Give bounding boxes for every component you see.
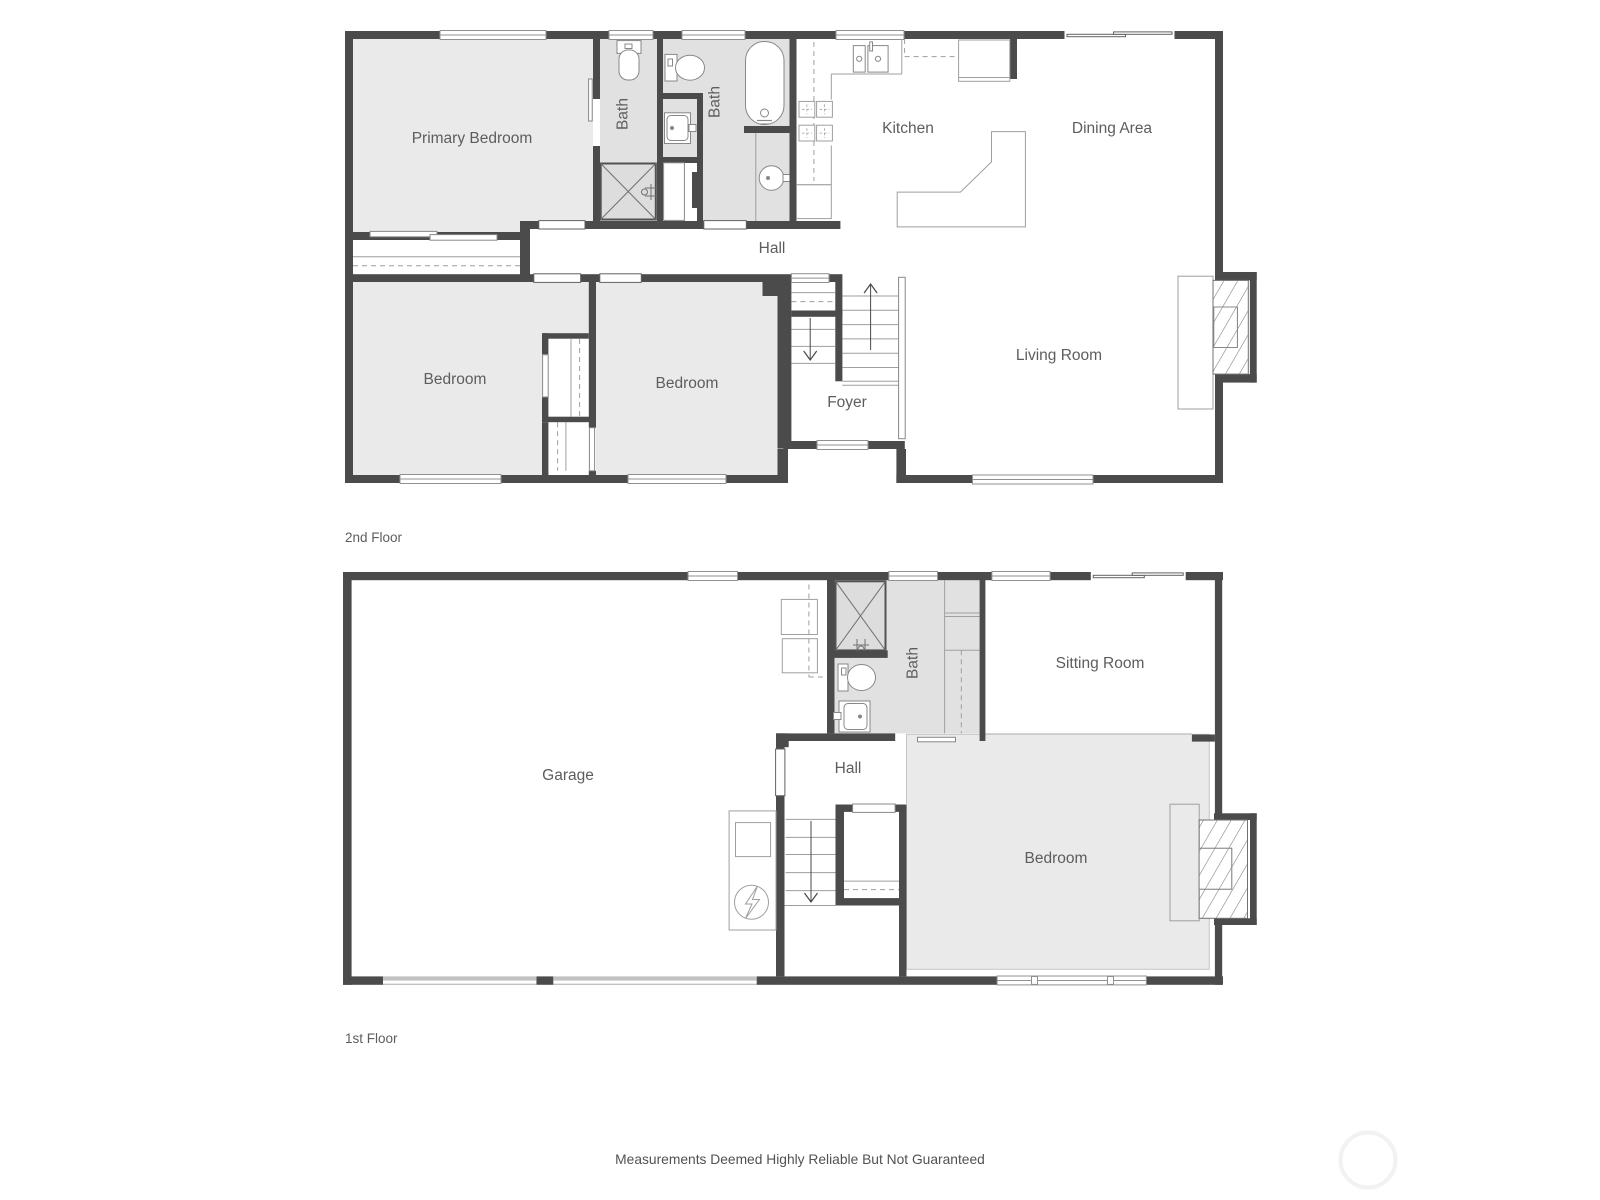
- svg-text:Kitchen: Kitchen: [882, 120, 934, 137]
- svg-text:Sitting Room: Sitting Room: [1056, 655, 1145, 672]
- svg-text:Bath: Bath: [707, 86, 724, 118]
- svg-text:1st Floor: 1st Floor: [345, 1031, 398, 1046]
- svg-text:Primary Bedroom: Primary Bedroom: [412, 130, 533, 147]
- svg-text:Living Room: Living Room: [1016, 347, 1102, 364]
- svg-text:2nd Floor: 2nd Floor: [345, 530, 403, 545]
- svg-text:Bedroom: Bedroom: [424, 371, 487, 388]
- svg-text:Dining Area: Dining Area: [1072, 120, 1153, 137]
- svg-text:Foyer: Foyer: [827, 394, 867, 411]
- svg-text:Bath: Bath: [905, 647, 922, 679]
- svg-text:Bath: Bath: [615, 98, 632, 130]
- svg-text:Hall: Hall: [835, 760, 862, 777]
- svg-text:Bedroom: Bedroom: [656, 375, 719, 392]
- svg-text:Hall: Hall: [759, 240, 786, 257]
- svg-text:Measurements Deemed Highly Rel: Measurements Deemed Highly Reliable But …: [615, 1152, 985, 1167]
- svg-text:Bedroom: Bedroom: [1025, 850, 1088, 867]
- svg-text:Garage: Garage: [542, 767, 594, 784]
